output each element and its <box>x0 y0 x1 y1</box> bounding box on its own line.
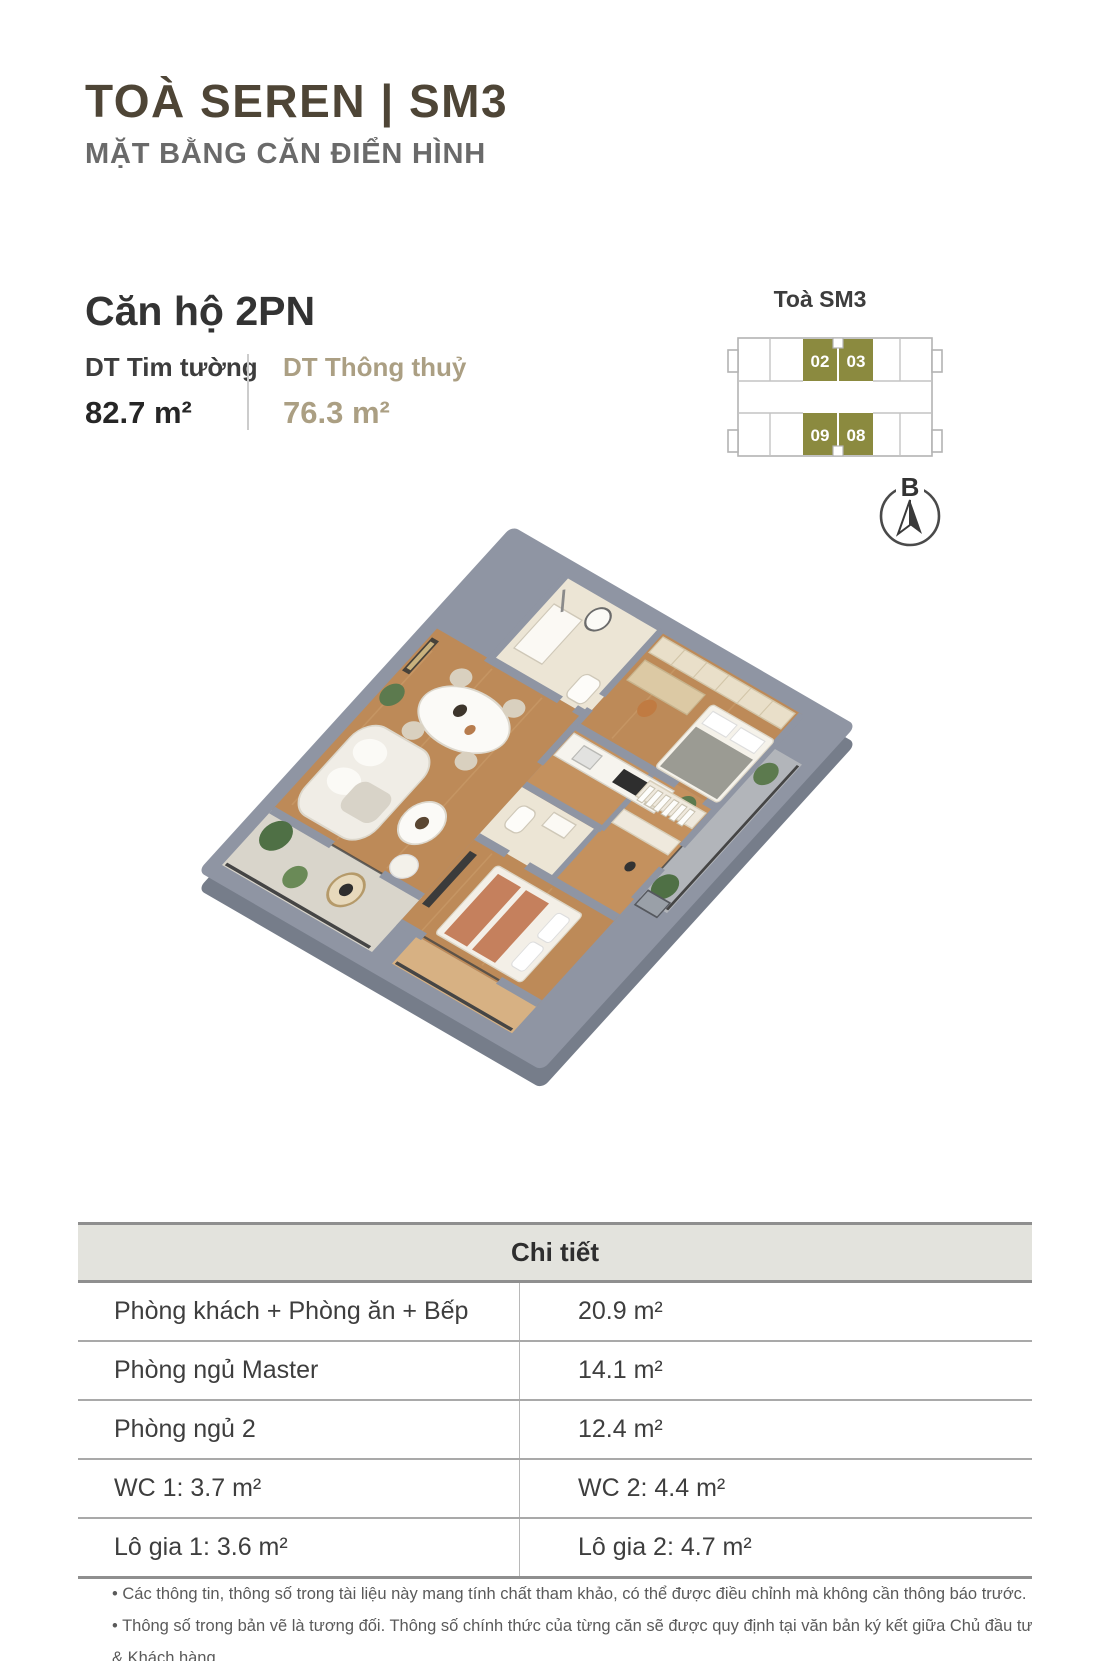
row-value: 14.1 m² <box>520 1342 1032 1399</box>
row-label: WC 1: 3.7 m² <box>78 1460 520 1517</box>
spec-gross-area: DT Tim tường 82.7 m² <box>85 352 245 431</box>
disclaimer-notes: • Các thông tin, thông số trong tài liệu… <box>112 1578 1042 1661</box>
page-subtitle: MẶT BẰNG CĂN ĐIỂN HÌNH <box>85 138 486 171</box>
compass-north-label: B <box>901 472 920 502</box>
spec-net-label: DT Thông thuỷ <box>283 352 466 383</box>
compass-needle-fill <box>910 500 922 534</box>
row-value: 20.9 m² <box>520 1283 1032 1340</box>
spec-net-value: 76.3 m² <box>283 395 466 431</box>
row-label: Phòng ngủ 2 <box>78 1401 520 1458</box>
spec-gross-label: DT Tim tường <box>85 352 245 383</box>
page-title: TOÀ SEREN | SM3 <box>85 74 508 128</box>
note-line-1: • Các thông tin, thông số trong tài liệu… <box>112 1578 1042 1610</box>
spec-net-area: DT Thông thuỷ 76.3 m² <box>283 352 466 431</box>
row-label: Phòng ngủ Master <box>78 1342 520 1399</box>
detail-table: Chi tiết Phòng khách + Phòng ăn + Bếp 20… <box>78 1222 1032 1579</box>
minimap-title: Toà SM3 <box>700 286 940 313</box>
table-row: Phòng ngủ 2 12.4 m² <box>78 1399 1032 1458</box>
floorplan-render <box>160 516 860 1136</box>
row-value: Lô gia 2: 4.7 m² <box>520 1519 1032 1576</box>
row-label: Lô gia 1: 3.6 m² <box>78 1519 520 1576</box>
unit-03-label: 03 <box>847 352 866 371</box>
building-minimap: 02 03 09 08 <box>690 334 950 466</box>
row-value: 12.4 m² <box>520 1401 1032 1458</box>
unit-02-label: 02 <box>811 352 830 371</box>
spec-divider <box>247 354 249 430</box>
unit-name: Căn hộ 2PN <box>85 288 315 335</box>
table-row: Lô gia 1: 3.6 m² Lô gia 2: 4.7 m² <box>78 1517 1032 1576</box>
spec-gross-value: 82.7 m² <box>85 395 245 431</box>
row-value: WC 2: 4.4 m² <box>520 1460 1032 1517</box>
table-row: Phòng khách + Phòng ăn + Bếp 20.9 m² <box>78 1283 1032 1340</box>
table-row: WC 1: 3.7 m² WC 2: 4.4 m² <box>78 1458 1032 1517</box>
brochure-page: TOÀ SEREN | SM3 MẶT BẰNG CĂN ĐIỂN HÌNH C… <box>0 0 1107 1661</box>
unit-09-label: 09 <box>811 426 830 445</box>
table-header: Chi tiết <box>78 1225 1032 1283</box>
table-row: Phòng ngủ Master 14.1 m² <box>78 1340 1032 1399</box>
compass-icon: B <box>868 468 952 556</box>
area-specs: DT Tim tường 82.7 m² DT Thông thuỷ 76.3 … <box>85 352 466 431</box>
row-label: Phòng khách + Phòng ăn + Bếp <box>78 1283 520 1340</box>
unit-08-label: 08 <box>847 426 866 445</box>
note-line-2: • Thông số trong bản vẽ là tương đối. Th… <box>112 1610 1042 1661</box>
compass-needle-outline <box>898 500 910 534</box>
